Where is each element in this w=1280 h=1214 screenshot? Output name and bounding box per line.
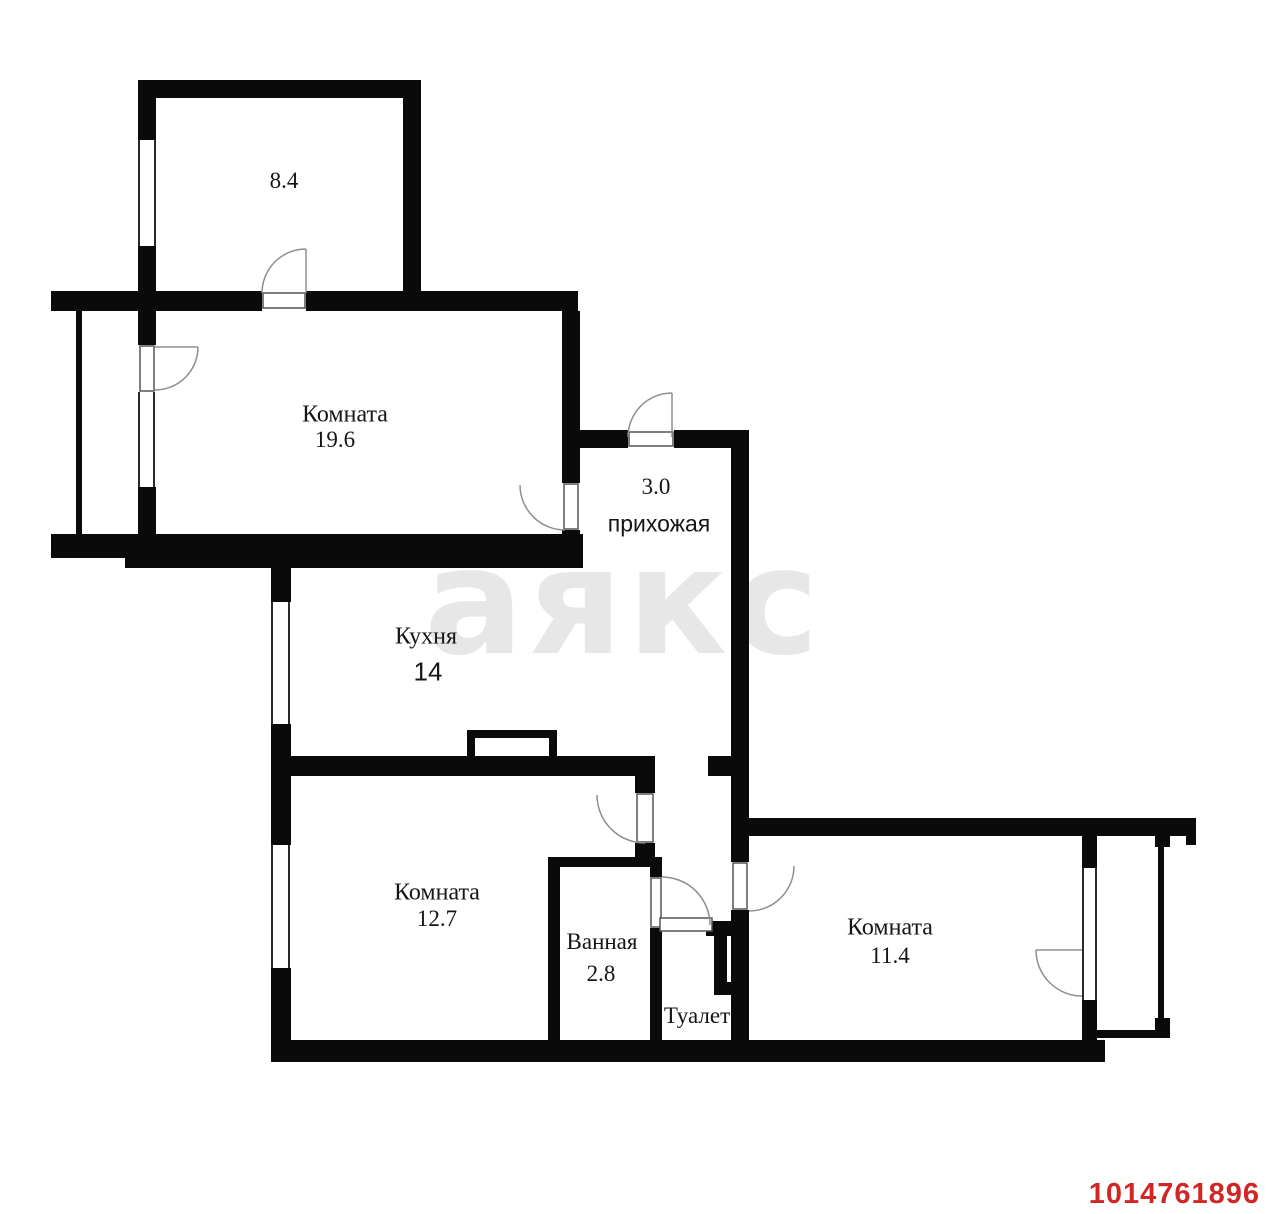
window-room-8-4 xyxy=(138,140,156,246)
label-kitchen-area: 14 xyxy=(414,657,443,688)
door-leaf-room-19-6 xyxy=(564,484,578,529)
label-hallway: прихожая xyxy=(608,511,711,538)
kitchen-niche xyxy=(475,738,549,756)
label-room-12-7: Комната xyxy=(394,880,480,907)
label-toilet: Туалет xyxy=(664,1003,730,1029)
label-hallway-area: 3.0 xyxy=(642,474,671,500)
walls xyxy=(51,80,1196,1062)
label-room-12-7-area: 12.7 xyxy=(417,906,457,932)
door-arc-balcony-11-4 xyxy=(1036,950,1082,996)
door-leaf-room-11-4 xyxy=(733,863,747,909)
door-arc-room-8-4 xyxy=(262,249,306,293)
door-gaps xyxy=(138,291,749,928)
door-arcs xyxy=(155,249,1082,996)
window-room-11-4-balcony xyxy=(1082,868,1097,1000)
floorplan-drawing xyxy=(0,0,1280,1214)
door-arc-room-19-6 xyxy=(520,485,565,530)
label-kitchen: Кухня xyxy=(395,624,457,651)
label-room-11-4-area: 11.4 xyxy=(870,943,909,969)
door-arc-room-11-4 xyxy=(749,866,794,911)
door-leaf-room-12-7 xyxy=(637,794,653,842)
door-leaf-room-8-4 xyxy=(263,293,305,308)
floorplan: аякс xyxy=(0,0,1280,1214)
label-room-19-6: Комната xyxy=(302,402,388,429)
label-room-8-4-area: 8.4 xyxy=(270,168,299,194)
door-leaf-balcony-19-6 xyxy=(140,346,154,391)
door-leaf-entry xyxy=(629,432,673,446)
label-bathroom: Ванная xyxy=(567,929,638,955)
label-room-11-4: Комната xyxy=(847,915,933,942)
door-leaves xyxy=(140,293,747,931)
label-bathroom-area: 2.8 xyxy=(587,961,616,987)
door-leaf-toilet xyxy=(660,918,712,931)
door-arc-balcony-19-6 xyxy=(155,347,198,390)
label-room-19-6-area: 19.6 xyxy=(315,427,355,453)
listing-id: 1014761896 xyxy=(1089,1178,1260,1211)
